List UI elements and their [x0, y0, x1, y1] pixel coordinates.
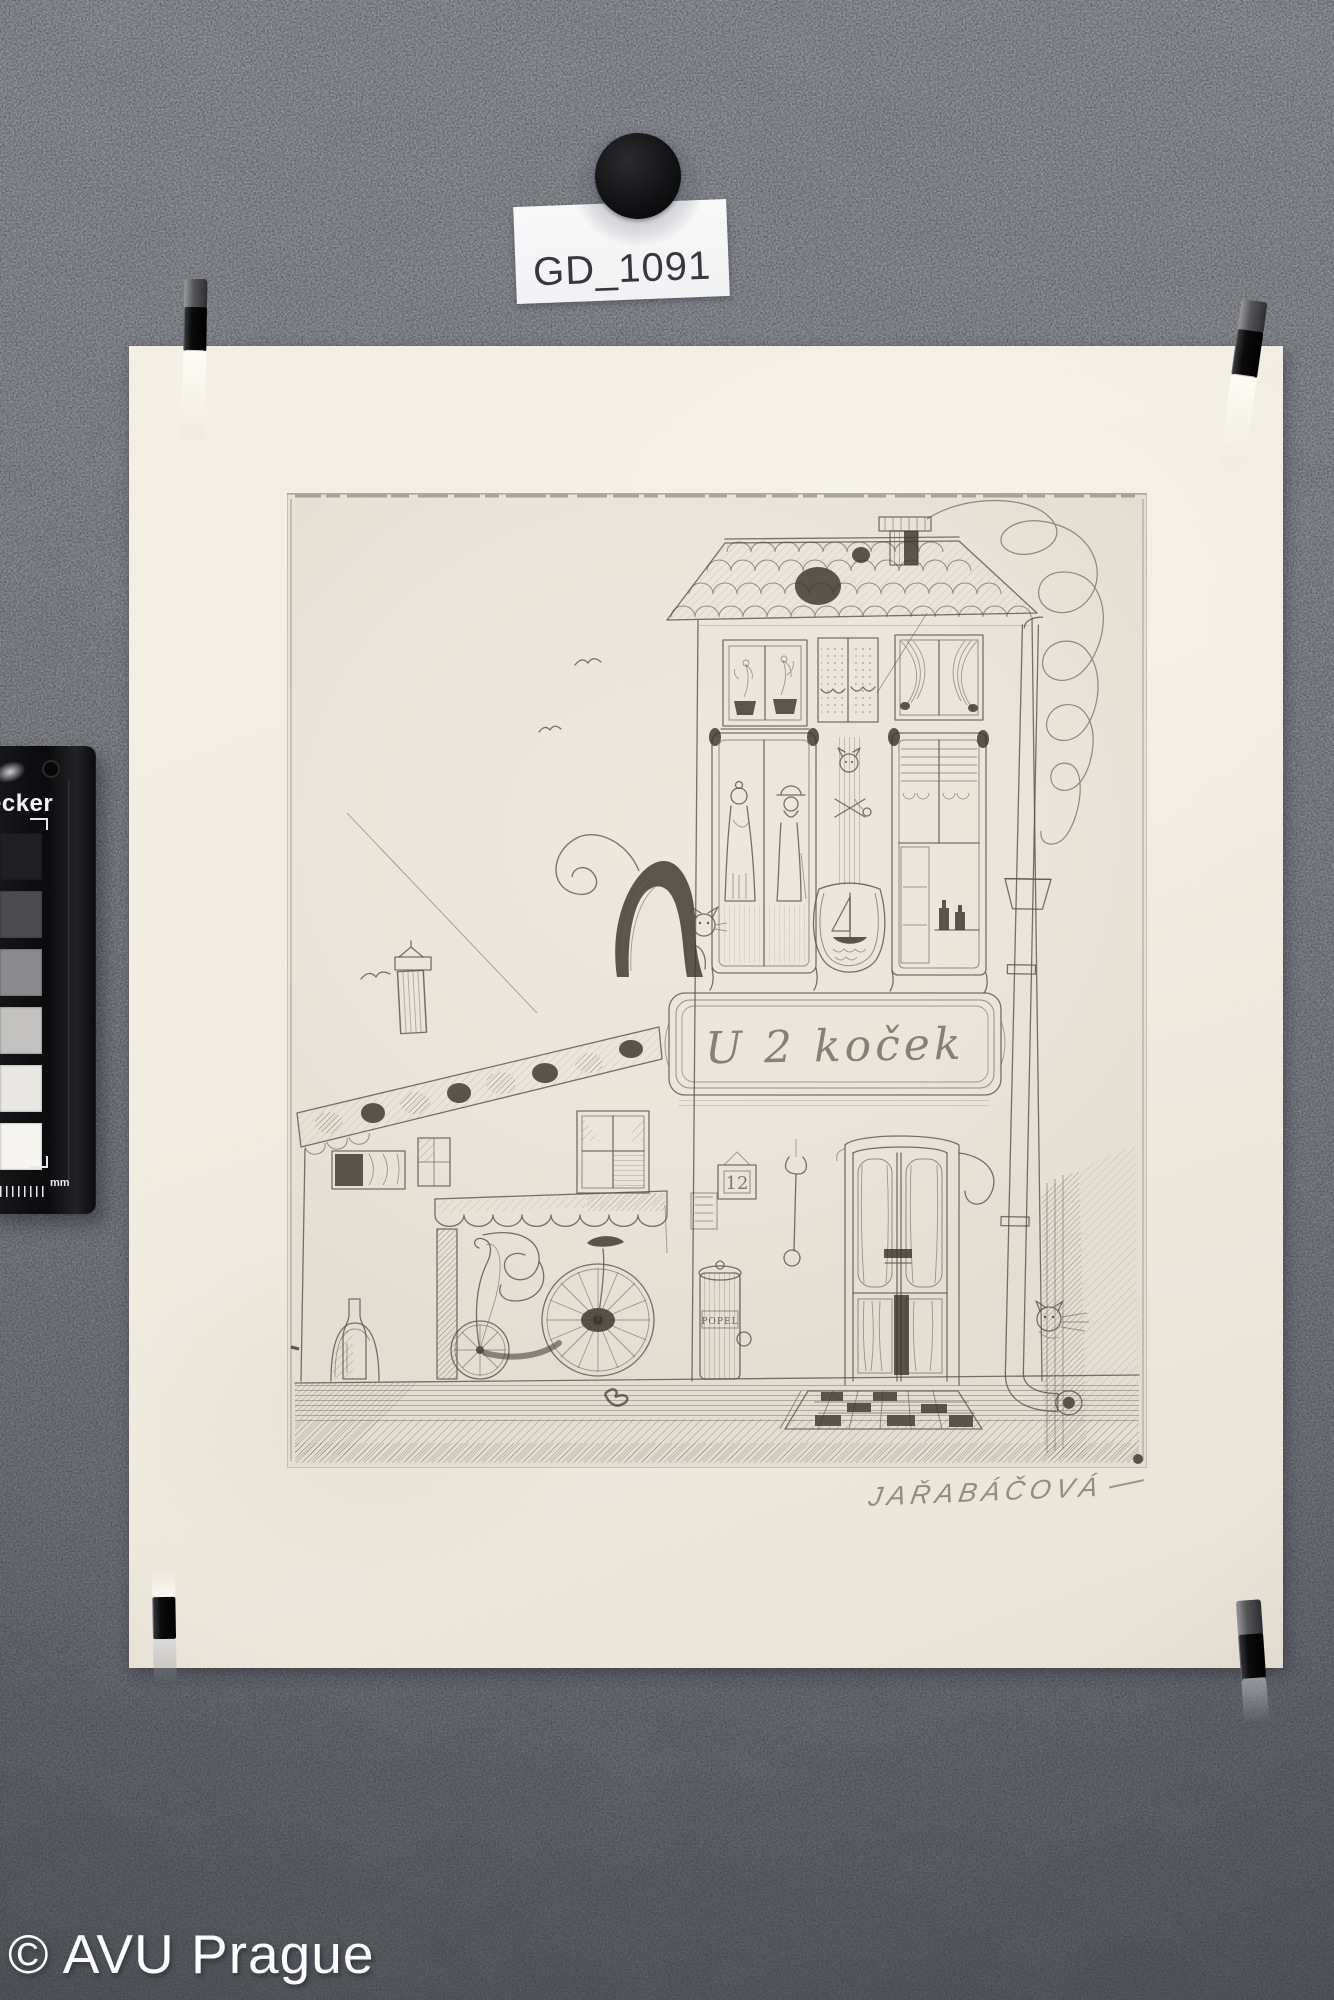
roof	[667, 537, 1037, 620]
crop-bracket-icon	[30, 1156, 48, 1168]
window-figures	[709, 728, 819, 990]
gray-patch-3	[0, 949, 42, 996]
annex-roof	[297, 1027, 662, 1154]
window-post-totem	[835, 737, 871, 885]
gray-patch-2	[0, 891, 42, 938]
clip-cap	[184, 279, 208, 309]
barrel-label-text: POPEL	[701, 1317, 738, 1327]
clip-wall-shadow	[1241, 1677, 1271, 1753]
bottle-in-niche	[331, 1299, 379, 1381]
clip-cap	[1236, 1599, 1263, 1637]
ground	[295, 1375, 1139, 1463]
etching-plate: U 2 koček	[287, 493, 1147, 1468]
house-number-text: 12	[726, 1173, 749, 1194]
signature-flourish	[1109, 1479, 1144, 1488]
dark-cat	[615, 861, 705, 977]
clip-reflection	[152, 1563, 176, 1599]
watermark: © AVU Prague	[8, 1922, 374, 1986]
gray-patch-4	[0, 1007, 42, 1054]
clip-black-bar	[183, 307, 207, 351]
magnet-dot-icon	[595, 133, 681, 219]
shop-scroll-bracket	[483, 1233, 544, 1301]
heraldic-shield	[814, 883, 885, 972]
window-tied-curtains	[895, 635, 983, 720]
clip-reflection	[181, 350, 206, 452]
main-house: U 2 koček	[295, 501, 1139, 1464]
shop-sign-text: U 2 koček	[705, 1019, 965, 1075]
paint-smudge	[0, 752, 35, 792]
house-number-sign: 12	[718, 1152, 756, 1199]
clip-magnet-bottom-left	[152, 1563, 178, 1711]
device-groove	[68, 780, 71, 1180]
window-shelf-bottles	[888, 728, 989, 993]
entrance-door	[837, 1136, 994, 1385]
photo-stage: { "scene": { "wall_top_color": "#92969b"…	[0, 0, 1334, 2000]
door-bell-cord	[784, 1139, 806, 1266]
color-checker-brand-text: ecker	[0, 790, 53, 818]
gray-patch-1	[0, 833, 42, 880]
annex-chimney	[395, 941, 431, 1034]
artist-signature: JAŘABÁČOVÁ	[866, 1470, 1145, 1513]
penny-farthing-bicycle	[451, 1236, 654, 1379]
artist-signature-text: JAŘABÁČOVÁ	[866, 1472, 1105, 1512]
cat-tail-spiral	[556, 835, 639, 895]
ruler-unit-label: mm	[50, 1177, 70, 1189]
window-flowers	[721, 640, 809, 729]
ruler-ticks	[0, 1186, 46, 1197]
shop-sign: U 2 koček	[665, 993, 1005, 1106]
inventory-label-text: GD_1091	[532, 244, 712, 304]
window-dot-curtains	[818, 638, 878, 722]
color-checker: ecker mm	[0, 746, 96, 1214]
screw-hole-icon	[42, 760, 60, 778]
clip-magnet-top-left	[182, 279, 208, 451]
gray-patch-5	[0, 1065, 42, 1112]
clip-wall-shadow	[153, 1639, 177, 1711]
ash-barrel: POPEL	[691, 1193, 751, 1379]
crop-bracket-icon	[30, 818, 48, 830]
artwork-paper: U 2 koček	[129, 346, 1283, 1668]
clip-black-bar	[1238, 1633, 1266, 1679]
clip-black-bar	[152, 1597, 176, 1639]
etching-drawing: U 2 koček	[287, 493, 1147, 1468]
